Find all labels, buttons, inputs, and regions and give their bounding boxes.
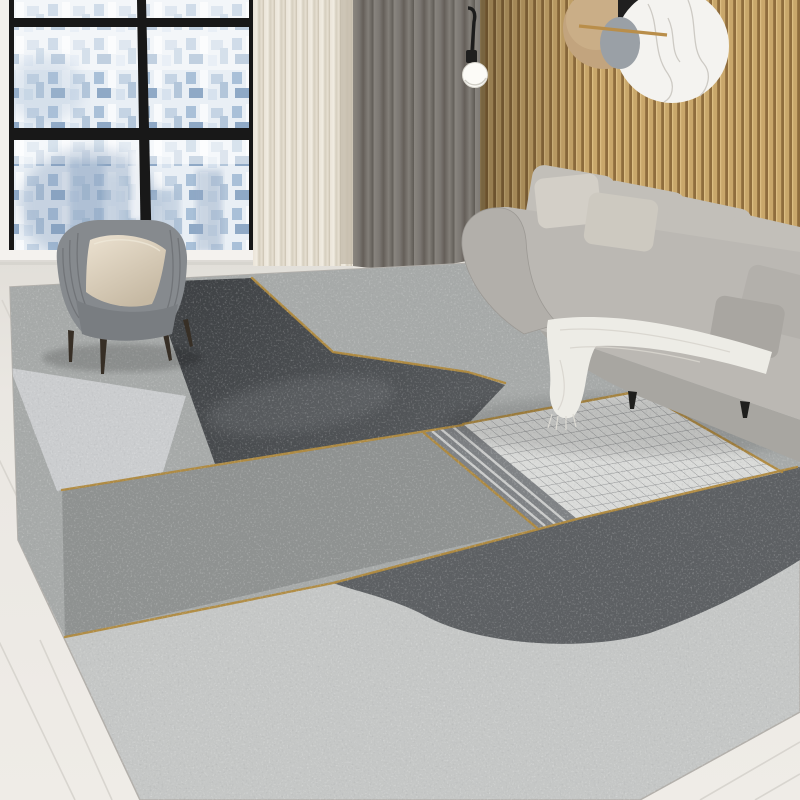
scene-canvas: [0, 0, 800, 800]
armchair-shadow: [42, 344, 202, 372]
living-room-photo: [0, 0, 800, 800]
curtains: [253, 0, 480, 300]
gray-disc: [600, 17, 640, 69]
cream-curtain-fold-edge: [340, 0, 354, 264]
armchair: [42, 220, 202, 374]
armchair-pillow: [86, 235, 166, 307]
cream-curtain: [253, 0, 353, 266]
lamp-globe: [463, 63, 488, 88]
lamp-cap: [466, 50, 477, 63]
wall-left-strip: [0, 0, 9, 290]
gray-curtain: [353, 0, 480, 300]
